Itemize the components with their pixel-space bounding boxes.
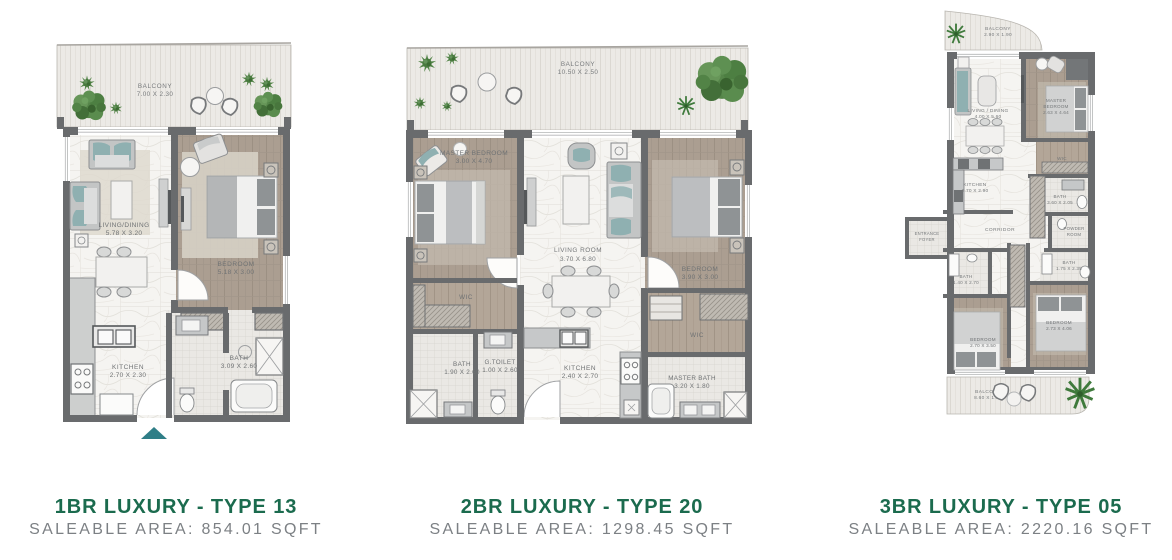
- svg-text:3.09 X 2.60: 3.09 X 2.60: [221, 363, 258, 370]
- svg-text:WIC: WIC: [459, 294, 473, 301]
- svg-text:3.00 X 4.70: 3.00 X 4.70: [456, 158, 493, 165]
- svg-text:LIVING ROOM: LIVING ROOM: [554, 247, 602, 254]
- svg-text:BALCONY: BALCONY: [561, 61, 595, 68]
- svg-text:BEDROOM: BEDROOM: [1046, 320, 1072, 325]
- svg-text:2.70 X 2.90: 2.70 X 2.90: [962, 188, 989, 194]
- svg-text:KITCHEN: KITCHEN: [112, 364, 144, 371]
- svg-text:BATH: BATH: [230, 355, 249, 362]
- svg-text:3.90 X 3.00: 3.90 X 3.00: [682, 274, 719, 281]
- svg-text:5.18 X 3.00: 5.18 X 3.00: [218, 269, 255, 276]
- svg-text:KITCHEN: KITCHEN: [963, 182, 986, 188]
- svg-text:BEDROOM: BEDROOM: [1043, 104, 1068, 109]
- svg-text:1.00 X 2.60: 1.00 X 2.60: [482, 367, 518, 374]
- svg-text:LIVING / DINING: LIVING / DINING: [967, 108, 1008, 114]
- svg-text:ROOM: ROOM: [1067, 232, 1082, 237]
- svg-text:2.70 X 2.30: 2.70 X 2.30: [110, 372, 147, 379]
- svg-text:LIVING/DINING: LIVING/DINING: [98, 222, 149, 229]
- svg-text:BATH: BATH: [453, 361, 471, 368]
- svg-text:2.70 X 3.50: 2.70 X 3.50: [970, 343, 996, 348]
- svg-text:KITCHEN: KITCHEN: [564, 365, 596, 372]
- svg-text:2.90 X 1.90: 2.90 X 1.90: [984, 32, 1012, 38]
- svg-text:BATH: BATH: [1062, 260, 1075, 265]
- svg-text:BATH: BATH: [959, 274, 972, 279]
- svg-text:1.90 X 2.60: 1.90 X 2.60: [444, 369, 480, 376]
- svg-text:ENTRANCE: ENTRANCE: [915, 231, 940, 236]
- svg-text:WIC: WIC: [690, 332, 704, 339]
- svg-text:MASTER: MASTER: [1046, 98, 1067, 103]
- svg-text:4.00 X 5.60: 4.00 X 5.60: [975, 114, 1002, 120]
- svg-text:5.78 X 3.20: 5.78 X 3.20: [106, 230, 143, 237]
- svg-text:FOYER: FOYER: [919, 237, 934, 242]
- svg-text:BEDROOM: BEDROOM: [970, 337, 996, 342]
- svg-text:MASTER BATH: MASTER BATH: [668, 375, 716, 382]
- svg-text:BALCONY: BALCONY: [138, 83, 172, 90]
- svg-text:POWDER: POWDER: [1064, 226, 1085, 231]
- svg-text:BEDROOM: BEDROOM: [217, 261, 254, 268]
- svg-text:10.50 X 2.50: 10.50 X 2.50: [558, 69, 599, 76]
- svg-text:MASTER BEDROOM: MASTER BEDROOM: [440, 150, 508, 157]
- svg-text:G.TOILET: G.TOILET: [485, 359, 516, 366]
- svg-text:1.75 X 2.35: 1.75 X 2.35: [1056, 266, 1082, 271]
- svg-text:BATH: BATH: [1053, 194, 1066, 199]
- svg-text:2.63 X 4.64: 2.63 X 4.64: [1043, 110, 1069, 115]
- svg-text:7.00 X 2.30: 7.00 X 2.30: [137, 91, 174, 98]
- svg-text:2.73 X 4.06: 2.73 X 4.06: [1046, 326, 1072, 331]
- svg-text:BALCONY: BALCONY: [985, 26, 1011, 32]
- svg-text:2.40 X 2.70: 2.40 X 2.70: [562, 373, 599, 380]
- svg-text:CORRIDOR: CORRIDOR: [985, 227, 1015, 233]
- svg-text:3.70 X 6.80: 3.70 X 6.80: [560, 256, 596, 263]
- svg-text:3.20 X 1.80: 3.20 X 1.80: [674, 383, 710, 390]
- svg-text:1.40 X 2.70: 1.40 X 2.70: [953, 280, 979, 285]
- svg-text:BEDROOM: BEDROOM: [682, 266, 718, 273]
- svg-text:3.60 X 2.05: 3.60 X 2.05: [1047, 200, 1073, 205]
- svg-text:WIC: WIC: [1057, 156, 1067, 161]
